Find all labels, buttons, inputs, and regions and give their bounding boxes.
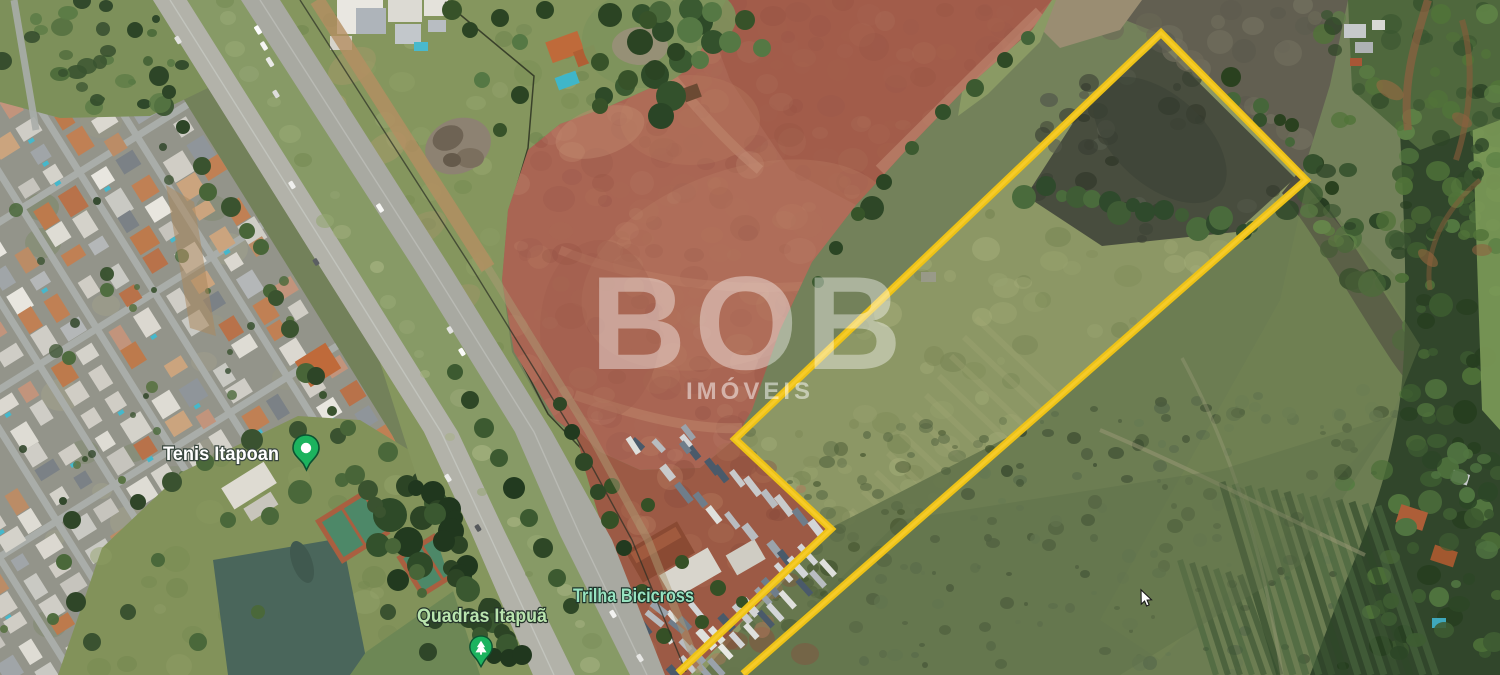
svg-text:IMÓVEIS: IMÓVEIS <box>686 377 814 405</box>
svg-text:Trilha Bicicross: Trilha Bicicross <box>573 586 694 607</box>
svg-text:Tenis Itapoan: Tenis Itapoan <box>163 444 279 465</box>
svg-text:BOB: BOB <box>590 250 910 398</box>
svg-text:Quadras Itapuã: Quadras Itapuã <box>417 606 547 627</box>
